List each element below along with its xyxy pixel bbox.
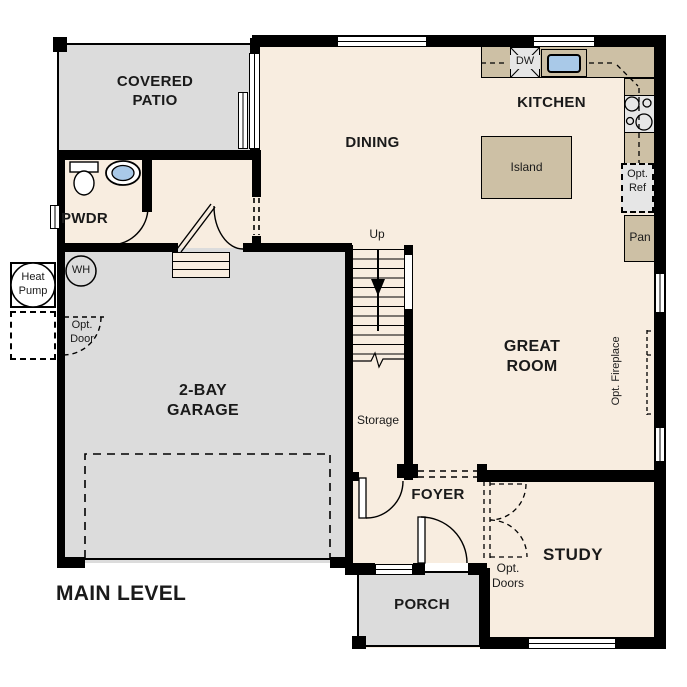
covered-patio-line1: COVERED	[79, 73, 231, 92]
front-door-arc	[421, 517, 467, 563]
stair-break-line	[352, 353, 404, 367]
burner-3	[627, 118, 634, 125]
garage-entry-door-arc	[214, 206, 243, 249]
porch-label: PORCH	[391, 596, 453, 615]
opt-ref-line2: Ref	[621, 182, 654, 196]
pan-label: Pan	[626, 230, 654, 245]
opt-fireplace-label: Opt. Fireplace	[610, 325, 624, 417]
opt-doors-arc-2	[490, 520, 527, 557]
toilet-bowl	[74, 171, 94, 195]
great-room-line2: ROOM	[462, 357, 602, 377]
opt-door-line1: Opt.	[60, 319, 104, 333]
heat-pump-line1: Heat	[11, 271, 55, 285]
great-room-label: GREAT ROOM	[462, 337, 602, 377]
opt-doors-label: Opt. Doors	[477, 561, 539, 591]
garage-entry-door-leaf	[177, 204, 211, 249]
up-label: Up	[362, 227, 392, 242]
dw-label: DW	[510, 55, 540, 69]
opt-door-line2: Door	[60, 333, 104, 347]
main-level-title: MAIN LEVEL	[56, 581, 186, 607]
burner-4	[636, 114, 652, 130]
opt-doors-arc-1	[490, 484, 526, 520]
opt-door-label: Opt. Door	[60, 319, 104, 347]
storage-door-leaf	[359, 478, 366, 518]
heat-pump-label: Heat Pump	[11, 271, 55, 299]
opt-ref-label: Opt. Ref	[621, 168, 654, 196]
garage-line2: GARAGE	[133, 401, 273, 421]
burner-1	[625, 97, 639, 111]
covered-patio-label: COVERED PATIO	[79, 73, 231, 111]
garage-door-dashed	[85, 454, 330, 558]
front-door-leaf	[418, 517, 425, 563]
pwdr-label: PWDR	[61, 210, 108, 229]
floor-plan: COVERED PATIO PWDR DINING KITCHEN GREAT …	[0, 0, 687, 687]
study-label: STUDY	[536, 544, 610, 565]
island-label: Island	[481, 160, 572, 175]
burner-2	[643, 99, 651, 107]
pwdr-door-arc	[110, 207, 148, 245]
garage-label: 2-BAY GARAGE	[133, 381, 273, 421]
opt-ref-line1: Opt.	[621, 168, 654, 182]
great-room-line1: GREAT	[462, 337, 602, 357]
wh-label: WH	[66, 264, 96, 278]
garage-entry-door-leaf-2	[181, 207, 215, 252]
foyer-label: FOYER	[407, 486, 469, 505]
kitchen-label: KITCHEN	[494, 94, 609, 113]
cabinet-dashed-3	[617, 65, 638, 86]
covered-patio-line2: PATIO	[79, 92, 231, 111]
opt-doors-line1: Opt.	[477, 561, 539, 576]
garage-line1: 2-BAY	[133, 381, 273, 401]
pwdr-sink-basin	[112, 166, 134, 181]
storage-door-arc	[366, 481, 403, 518]
opt-doors-line2: Doors	[477, 576, 539, 591]
heat-pump-line2: Pump	[11, 285, 55, 299]
dining-label: DINING	[325, 134, 420, 153]
storage-label: Storage	[350, 413, 406, 428]
